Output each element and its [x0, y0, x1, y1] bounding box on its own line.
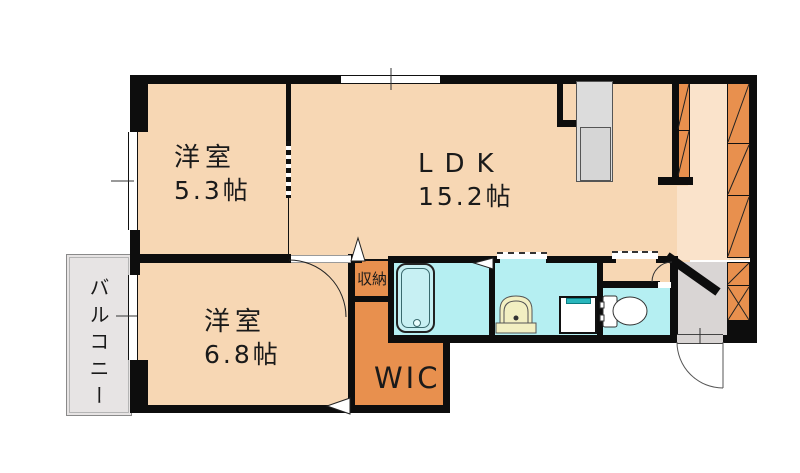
closet-cell: [727, 143, 750, 196]
floor-entrance: [676, 262, 727, 338]
ldk-size: 15.2帖: [418, 181, 514, 212]
door-opening-toilet: [658, 282, 671, 288]
partition-thin-line: [288, 198, 289, 256]
wall-ldk-wash: [546, 256, 616, 263]
door-opening-bedroom2: [291, 255, 351, 263]
closet-cell: [727, 195, 750, 258]
door-arc-entrance: [677, 342, 723, 388]
wall-left-upper: [130, 75, 148, 132]
balcony: バルコニー: [66, 254, 132, 416]
storage-box: 収納: [352, 259, 392, 299]
open-boundary-washroom: [497, 252, 547, 259]
bedroom1-name: 洋室: [174, 142, 251, 175]
wall-kitchen-stub-h: [557, 120, 576, 127]
window-bedroom2: [128, 275, 138, 360]
bedroom1-label: 洋室 5.3帖: [174, 142, 251, 206]
bathtub-drain: [413, 319, 421, 327]
storage-label: 収納: [357, 270, 387, 289]
wall-left-mid: [130, 230, 140, 275]
bathtub: [396, 263, 435, 333]
wall-wic-right: [443, 335, 450, 413]
wic-label: WIC: [374, 360, 440, 396]
wall-entry-corner-block: [727, 320, 757, 343]
bedroom2-size: 6.8帖: [204, 339, 281, 370]
wall-bath-left: [388, 256, 394, 337]
wall-wic-left: [348, 254, 355, 407]
wall-toilet-right: [670, 260, 678, 337]
floor-corridor: [688, 83, 729, 260]
partition-dashed: [286, 141, 291, 198]
wall-toilet-top: [600, 281, 660, 288]
bedroom2-name: 洋室: [204, 306, 281, 339]
washer-pan: [559, 296, 597, 334]
kitchen-counter: [576, 81, 613, 182]
balcony-label: バルコニー: [85, 277, 110, 412]
open-boundary-hall: [612, 251, 658, 259]
shoe-closet-cell: [727, 285, 750, 322]
floor-corridor-lower: [677, 186, 689, 260]
wall-ldk-bath: [388, 256, 500, 263]
wall-wash-toilet: [597, 258, 603, 337]
ldk-name: LDK: [418, 148, 514, 181]
wall-right: [750, 75, 757, 343]
wall-top: [130, 75, 757, 84]
shoe-closet-cell: [727, 262, 750, 286]
wall-bath-wash: [489, 258, 495, 337]
closet-cell: [727, 83, 750, 144]
wall-t-vertical: [672, 75, 679, 180]
wall-bedroom1-bottom: [130, 254, 291, 263]
wall-storage-divider: [350, 296, 392, 302]
wall-t-foot: [658, 177, 693, 185]
ldk-label: LDK 15.2帖: [418, 148, 514, 212]
bedroom2-label: 洋室 6.8帖: [204, 306, 281, 370]
floor-plan-canvas: バルコニー 収納: [0, 0, 800, 473]
kitchen-sink: [580, 127, 611, 181]
washer-faucet: [566, 298, 591, 304]
floor-toilet: [602, 287, 672, 335]
wall-bedroom1-ldk: [286, 78, 291, 141]
window-top: [341, 75, 440, 84]
wall-bottom-left: [130, 405, 450, 413]
wall-left-lower: [130, 360, 148, 413]
window-bedroom1: [128, 132, 138, 230]
entry-door-sill: [677, 334, 723, 344]
bedroom1-size: 5.3帖: [174, 175, 251, 206]
